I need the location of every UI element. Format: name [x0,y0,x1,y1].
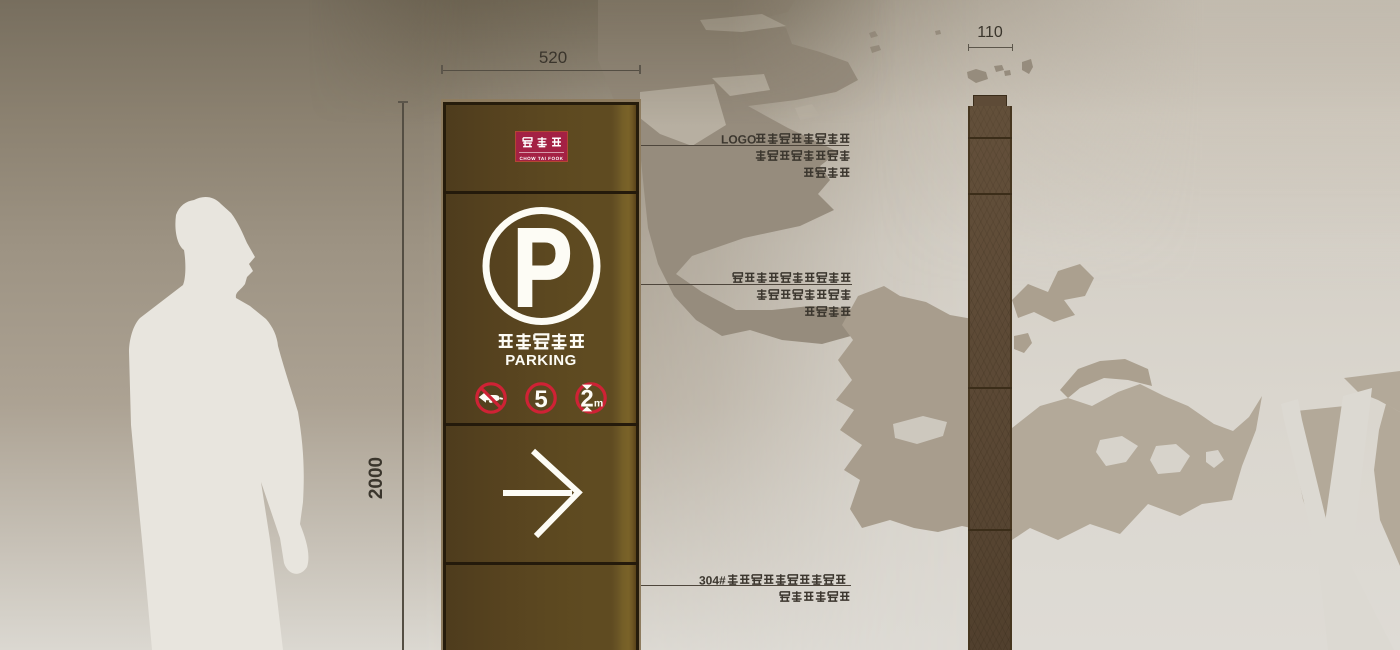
svg-text:CHOW TAI FOOK: CHOW TAI FOOK [520,156,564,161]
svg-text:5: 5 [534,386,547,413]
svg-text:2: 2 [580,386,593,413]
svg-text:LOGO: LOGO [721,133,756,147]
svg-text:m: m [594,397,603,409]
svg-text:304#: 304# [699,574,726,588]
svg-text:P: P [513,205,573,330]
